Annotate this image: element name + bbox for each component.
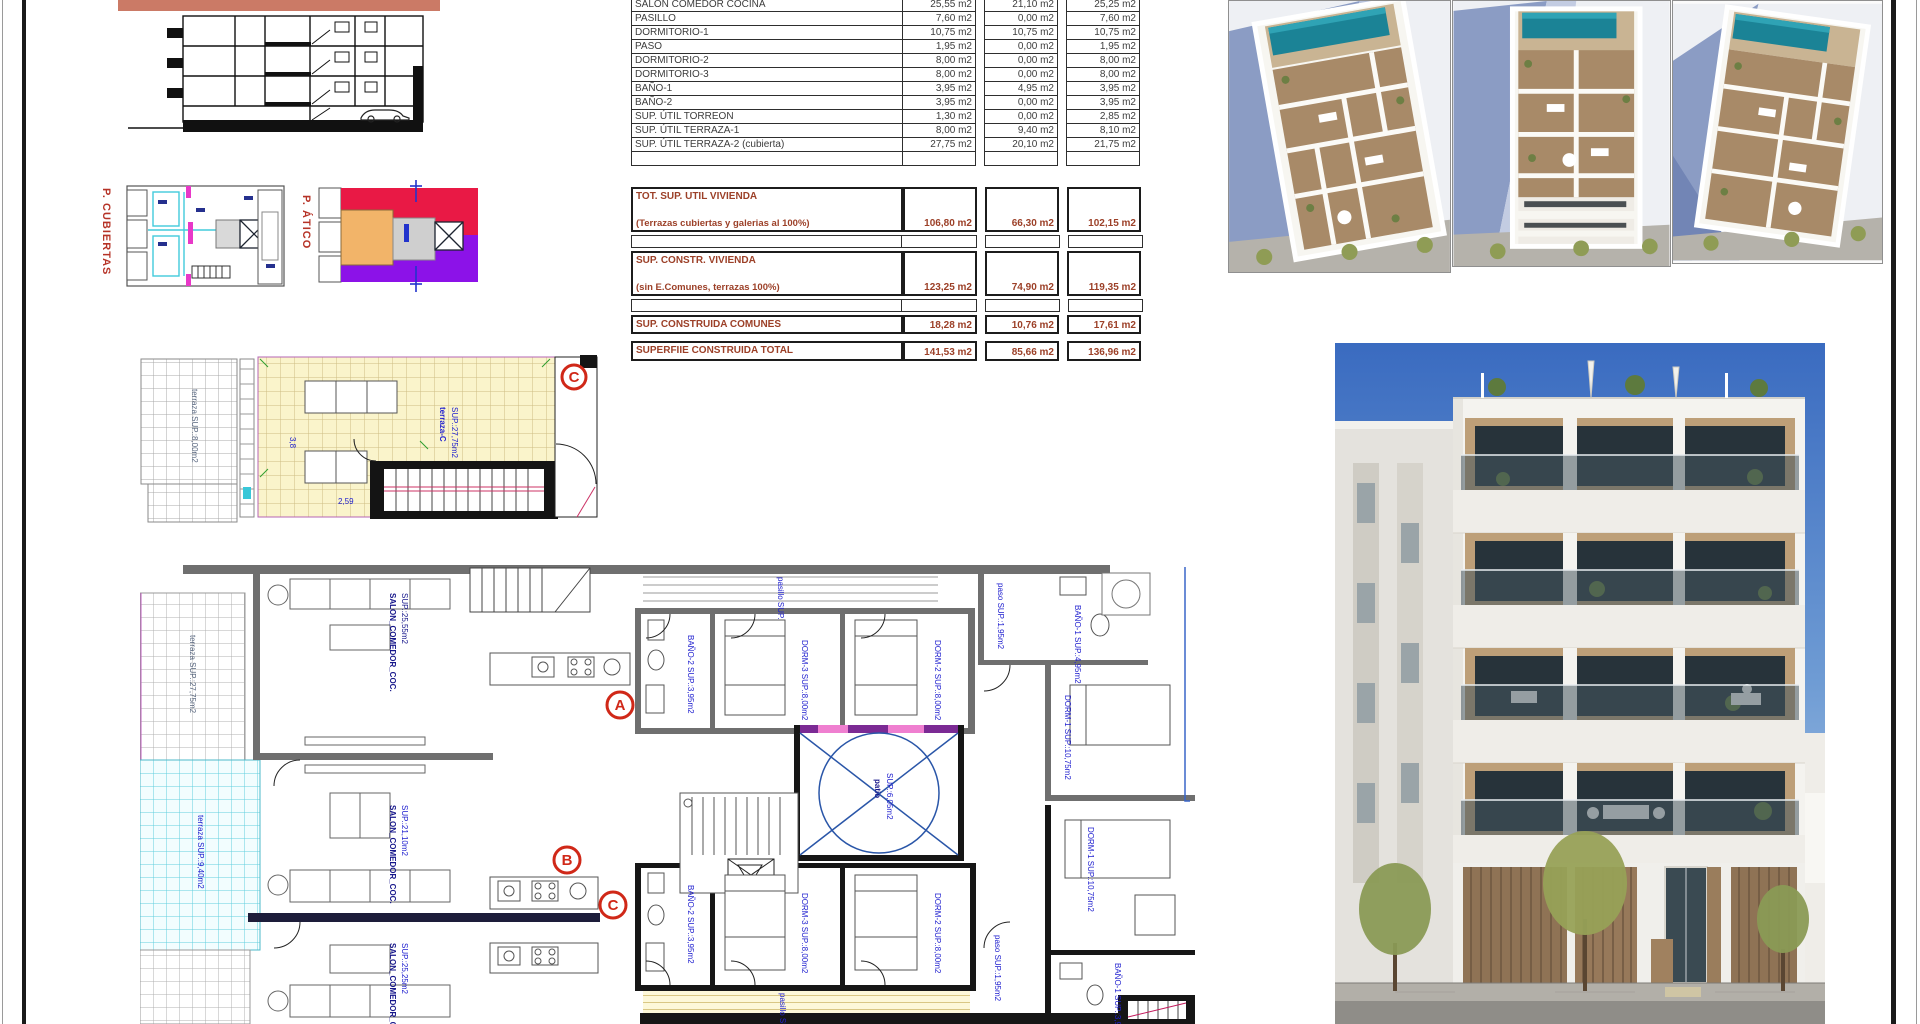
living-room-a [268, 579, 450, 745]
dorm2-a [855, 620, 917, 715]
crosswalk-pavers [1665, 987, 1701, 997]
bano2-a-label: BAÑO-2 SUP.:3,95m2 [686, 635, 695, 714]
table-row: DORMITORIO-110,75 m210,75 m210,75 m2 [631, 25, 1143, 40]
table-row: BAÑO-23,95 m20,00 m23,95 m2 [631, 95, 1143, 110]
dorm1-a-label: DORM-1 SUP.:10,75m2 [1063, 695, 1072, 780]
entrance-door [1665, 867, 1721, 983]
dorm3-a [725, 620, 785, 715]
salon-a-sup: SUP.:25,55m2 [400, 593, 409, 645]
roof-terrace-plan: terraza SUP.:8,00m2 terraza-C SUP.:27,75… [140, 349, 600, 530]
aerial-render-1 [1228, 0, 1451, 273]
dorm1-a [1070, 685, 1170, 745]
table-row: DORMITORIO-28,00 m20,00 m28,00 m2 [631, 53, 1143, 68]
atico-gray-core [393, 218, 435, 260]
cubiertas-title: P. CUBIERTAS [100, 188, 112, 288]
frame-left [22, 0, 26, 1024]
aerial-render-1-image [1229, 1, 1450, 272]
terrace-left-label: terraza SUP.:8,00m2 [190, 389, 199, 463]
aerial-render-2 [1452, 0, 1671, 267]
total-row-total: SUPERFIIE CONSTRUIDA TOTAL 141,53 m2 85,… [631, 341, 1143, 361]
atico-plan [318, 180, 480, 292]
table-row-empty [631, 235, 1143, 248]
stair-c-bottom [1128, 1001, 1186, 1019]
section-marker-a: A [607, 692, 633, 718]
cubiertas-plan [126, 180, 286, 292]
dim-3-8: 3,8 [288, 437, 297, 449]
salon-c-label: SALON_COMEDOR_COC. [388, 943, 397, 1024]
terraza-a-label: terraza SUP.:27,75m2 [188, 635, 197, 714]
marker-letter: A [615, 697, 626, 714]
terrace-tiles-left-lower [148, 484, 237, 522]
paso-c-label: paso SUP.:1,95m2 [993, 935, 1002, 1002]
table-row: SUP. ÚTIL TORREON1,30 m20,00 m22,85 m2 [631, 109, 1143, 124]
kitchen-c [490, 943, 598, 973]
terrace-c-tiles [140, 950, 250, 1024]
stair-a [470, 568, 590, 612]
corridor-a [643, 575, 938, 605]
cubiertas-left-rooms [127, 190, 147, 280]
table-row: DORMITORIO-38,00 m20,00 m28,00 m2 [631, 67, 1143, 82]
aerial-render-3 [1672, 0, 1883, 264]
dorm3-a-label: DORM-3 SUP.:8,00m2 [800, 640, 809, 721]
car-icon [361, 110, 409, 122]
terrace-c-label: terraza-C [438, 407, 447, 442]
section-roof-band [118, 0, 440, 11]
marker-letter: B [562, 852, 573, 869]
skylight-icon [435, 222, 463, 250]
patio-sup: SUP.:6,05m2 [885, 773, 894, 820]
building-section-drawing [115, 0, 445, 150]
table-row-empty [631, 151, 1143, 166]
terrace-c-sup: SUP.:27,75m2 [450, 407, 459, 459]
table-row: BAÑO-13,95 m24,95 m23,95 m2 [631, 81, 1143, 96]
living-room-c [268, 945, 450, 1017]
total-row-util: TOT. SUP. UTIL VIVIENDA(Terrazas cubiert… [631, 187, 1143, 232]
atico-left-rooms [319, 188, 341, 282]
plan-boundary-blue [1185, 567, 1190, 801]
planter [1651, 939, 1673, 983]
terraza-b-label: terraza SUP.:9,40m2 [196, 815, 205, 889]
dorm2-a-label: DORM-2 SUP.:8,00m2 [933, 640, 942, 721]
kitchen-b [490, 877, 598, 909]
section-marker-c-terrace: C [562, 365, 586, 389]
salon-c-sup: SUP.:25,25m2 [400, 943, 409, 995]
dorm3-c [725, 875, 785, 970]
cubiertas-stair-landing [216, 220, 240, 248]
facade-render [1335, 343, 1825, 1024]
bano1-c-label: BAÑO-1 SUP.:3,95m2 [1113, 963, 1122, 1024]
kitchen-a [490, 653, 630, 685]
section-marker-b: B [554, 847, 580, 873]
frame-left-thin [2, 0, 3, 1024]
salon-b-sup: SUP.:21,10m2 [400, 805, 409, 857]
main-building [1453, 361, 1805, 983]
balcony-rail [240, 359, 254, 517]
table-row: SUP. ÚTIL TERRAZA-2 (cubierta)27,75 m220… [631, 137, 1143, 152]
table-row-empty [631, 299, 1143, 312]
marker-letter: C [608, 897, 619, 914]
frame-right-thin [1916, 0, 1917, 1024]
street [1335, 983, 1825, 1024]
frame-right [1891, 0, 1896, 1024]
table-row: SUP. ÚTIL TERRAZA-18,00 m29,40 m28,10 m2 [631, 123, 1143, 138]
terrace-tiles-left [141, 359, 237, 484]
dorm1-c [1065, 820, 1175, 935]
dorm2-c-label: DORM-2 SUP.:8,00m2 [933, 893, 942, 974]
total-row-comunes: SUP. CONSTRUIDA COMUNES 18,28 m2 10,76 m… [631, 315, 1143, 334]
walls-divider [248, 913, 600, 922]
cubiertas-stair-hatch [192, 266, 230, 278]
total-row-constr: SUP. CONSTR. VIVIENDA(sin E.Comunes, ter… [631, 251, 1143, 296]
bath2-c [646, 873, 664, 971]
patio: patio SUP.:6,05m2 [794, 725, 964, 861]
salon-a-label: SALON_COMEDOR_COC. [388, 593, 397, 692]
bath2-a [646, 620, 664, 713]
dorm2-c [855, 875, 917, 970]
table-row: PASILLO7,60 m20,00 m27,60 m2 [631, 11, 1143, 26]
floor-bands [1453, 418, 1805, 863]
main-floor-plan: terraza SUP.:27,75m2 terraza SUP.:9,40m2 [140, 565, 1195, 1024]
plan-sheet: P. CUBIERTAS P. ÁTICO [0, 0, 1920, 1024]
salon-b-label: SALON_COMEDOR_COC. [388, 805, 397, 904]
living-room-b [268, 765, 450, 902]
atico-title: P. ÁTICO [300, 195, 312, 285]
corridor-c [643, 991, 970, 1013]
bath1-c [1060, 963, 1103, 1005]
section-marker-c: C [600, 892, 626, 918]
atico-orange-zone [341, 210, 393, 265]
aerial-render-2-image [1453, 1, 1670, 266]
table-row: PASO1,95 m20,00 m21,95 m2 [631, 39, 1143, 54]
patio-label: patio [873, 779, 882, 798]
bano2-c-label: BAÑO-2 SUP.:3,95m2 [686, 885, 695, 964]
dim-2-59: 2,59 [338, 497, 354, 506]
surface-area-table: SALON COMEDOR COCINA25,55 m221,10 m225,2… [631, 0, 1143, 361]
cubiertas-right-inner [262, 212, 278, 260]
aerial-render-3-image [1673, 1, 1882, 263]
ground-floor [1453, 863, 1805, 983]
bano1-a-label: BAÑO-1 SUP.:4,95m2 [1073, 605, 1082, 684]
right-terrace-shower [1102, 573, 1150, 615]
paso-a-label: paso SUP.:1,95m2 [996, 583, 1005, 650]
dorm1-c-label: DORM-1 SUP.:10,75m2 [1086, 827, 1095, 912]
marker-letter: C [569, 369, 580, 386]
pasillo-c-label: pasillo SUP.:7,60m2 [778, 993, 787, 1024]
dorm3-c-label: DORM-3 SUP.:8,00m2 [800, 893, 809, 974]
